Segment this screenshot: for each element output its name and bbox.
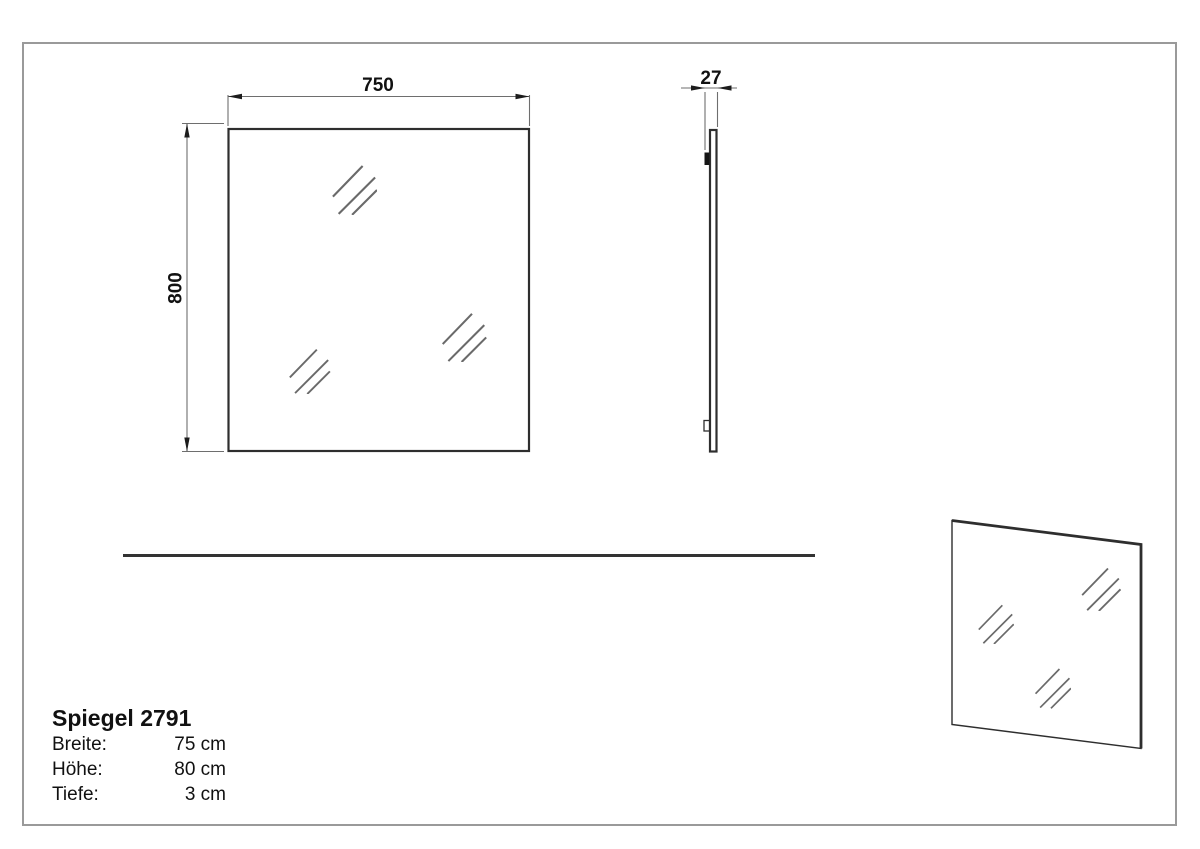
side-view [704,130,717,452]
mirror-perspective-outline [952,521,1141,749]
perspective-view [952,521,1141,749]
spec-label: Tiefe: [52,782,99,807]
front-height-value: 800 [167,272,186,304]
spec-value: 75 cm [174,732,226,757]
mirror-front-outline [229,129,530,451]
mirror-side-outline [710,130,717,452]
spec-label: Höhe: [52,757,103,782]
spec-value: 3 cm [185,782,226,807]
arrowhead-right-icon [516,94,530,99]
arrowhead-up-icon [184,124,189,138]
front-width-dimension [228,94,530,126]
spec-row-depth: Tiefe: 3 cm [52,782,226,807]
product-info-block: Spiegel 2791 Breite: 75 cm Höhe: 80 cm T… [52,705,226,807]
front-view [229,129,530,451]
spec-label: Breite: [52,732,107,757]
spec-row-width: Breite: 75 cm [52,732,226,757]
ground-line [123,554,815,557]
spec-row-height: Höhe: 80 cm [52,757,226,782]
product-title: Spiegel 2791 [52,705,226,731]
front-width-value: 750 [362,76,394,95]
technical-drawing-page: 750 800 27 Spiegel 2791 Breite: 75 cm Hö… [0,0,1200,849]
arrowhead-left-icon [228,94,242,99]
wall-bracket-top [705,153,710,166]
spec-value: 80 cm [174,757,226,782]
arrowhead-down-icon [184,438,189,452]
front-height-dimension [182,124,224,452]
side-depth-value: 27 [700,69,721,88]
wall-bracket-bottom [704,421,710,432]
